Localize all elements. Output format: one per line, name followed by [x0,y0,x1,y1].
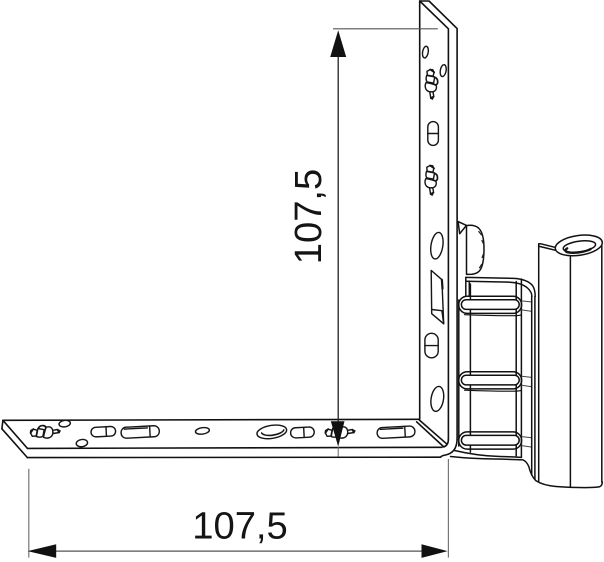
svg-text:107,5: 107,5 [192,505,288,548]
svg-text:107,5: 107,5 [287,169,330,265]
